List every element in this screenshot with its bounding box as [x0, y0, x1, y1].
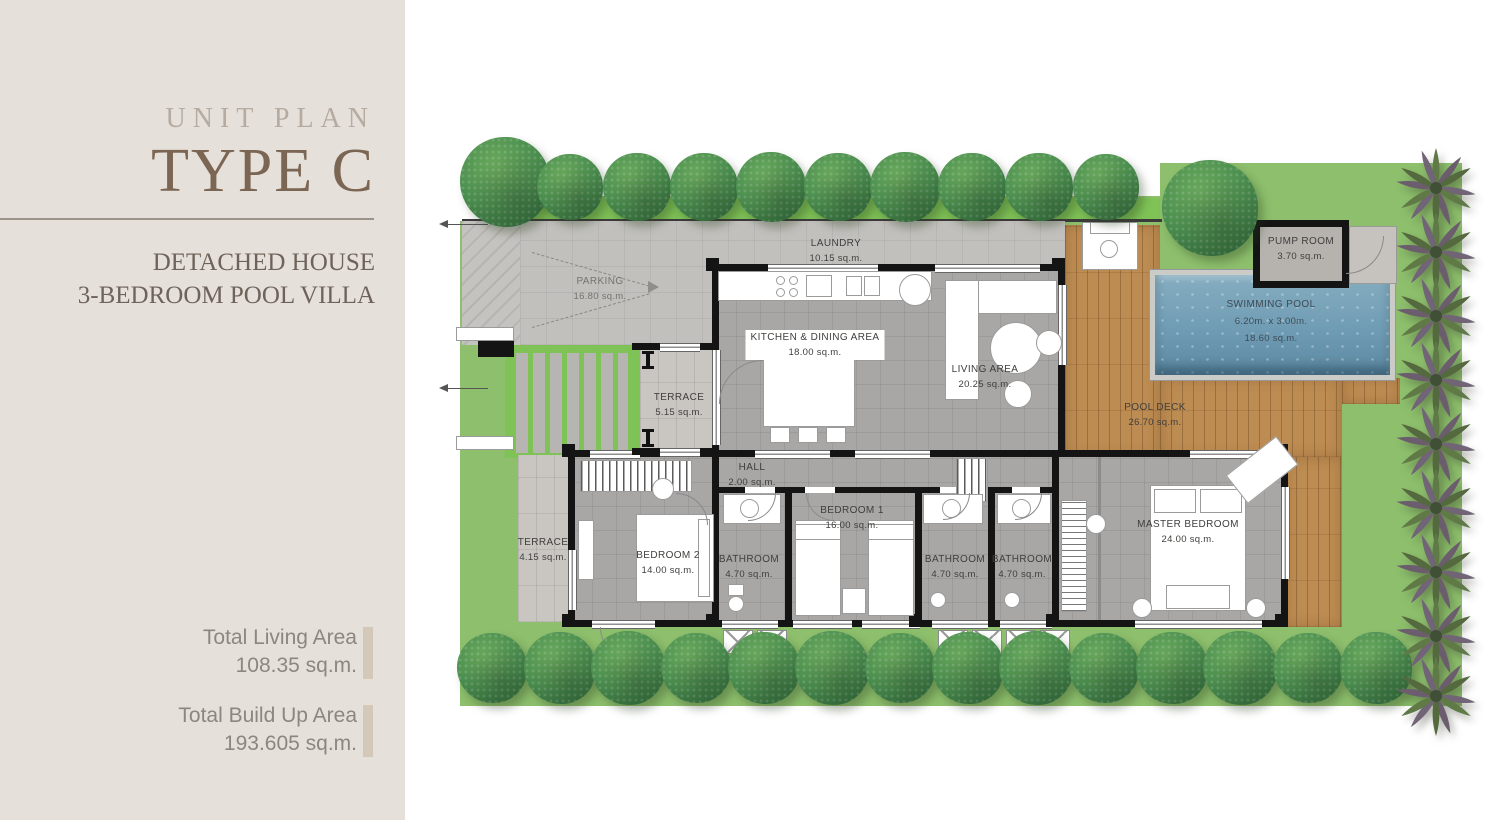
tree-icon [736, 152, 806, 222]
tree-icon [938, 153, 1006, 221]
pillow [795, 524, 841, 540]
pool-deck-wood [1160, 378, 1342, 457]
section-marker [448, 224, 488, 225]
pillow [1154, 489, 1196, 513]
window [1000, 620, 1052, 629]
palm-tree-icon [1394, 654, 1478, 738]
tree-icon [870, 152, 940, 222]
wardrobe [580, 460, 692, 492]
pump-room [1253, 220, 1349, 288]
step-marker [646, 430, 650, 446]
pool-deck-wood [1285, 457, 1342, 627]
window [755, 450, 830, 459]
tree-icon [591, 631, 665, 705]
tree-icon [804, 153, 872, 221]
shower-drain-icon [1100, 240, 1118, 258]
dresser [578, 520, 594, 580]
partition-wall [988, 490, 995, 620]
bench [1166, 585, 1230, 609]
tree-icon [932, 632, 1004, 704]
dining-chair [826, 427, 846, 443]
sink-basin [864, 276, 880, 296]
window [660, 448, 700, 457]
window [660, 343, 700, 352]
window [855, 450, 930, 459]
oven [806, 275, 832, 297]
column [706, 258, 719, 271]
dining-chair [798, 427, 818, 443]
tree-icon [865, 633, 935, 703]
outdoor-shower [1090, 222, 1130, 234]
wash-basin [1086, 514, 1106, 534]
pouf [1004, 380, 1032, 408]
partition-wall [915, 490, 922, 620]
window [793, 620, 852, 629]
pool-deck-wood [1342, 378, 1400, 404]
stove-burner-icon [776, 276, 785, 285]
window [722, 620, 778, 629]
drive-arrow-tip [648, 281, 659, 293]
column [1052, 258, 1065, 271]
column [562, 614, 575, 627]
side-table [1036, 330, 1062, 356]
pillow [698, 519, 710, 597]
side-table [652, 478, 674, 500]
sofa [945, 280, 979, 400]
tree-icon [1162, 160, 1258, 256]
stove-burner-icon [789, 276, 798, 285]
pillow [1200, 489, 1242, 513]
tree-icon [1203, 631, 1277, 705]
stove-burner-icon [789, 288, 798, 297]
tree-icon [1273, 633, 1343, 703]
tree-icon [524, 632, 596, 704]
section-marker [448, 388, 488, 389]
stepping-stones [516, 353, 628, 453]
nightstand [1132, 598, 1152, 618]
parking-pavement [520, 221, 712, 345]
column [562, 444, 575, 457]
site-plan: PARKING 16.80 sq.m. LAUNDRY 10.15 sq.m. … [0, 0, 1500, 820]
tree-icon [795, 631, 869, 705]
tree-icon [1136, 632, 1208, 704]
toilet [1004, 592, 1020, 608]
tree-icon [603, 153, 671, 221]
tree-icon [457, 633, 527, 703]
side-terrace-pavers [518, 455, 568, 622]
sliding-door [1281, 487, 1290, 579]
partition-wall [785, 490, 792, 620]
tree-icon [537, 154, 603, 220]
gate [456, 327, 514, 341]
round-table [899, 274, 931, 306]
tree-icon [1073, 154, 1139, 220]
unit-plan-page: UNIT PLAN TYPE C DETACHED HOUSE 3-BEDROO… [0, 0, 1500, 820]
tree-icon [1005, 153, 1073, 221]
partition-wall [1052, 457, 1059, 620]
tree-icon [661, 633, 731, 703]
column [1275, 614, 1288, 627]
nightstand [842, 588, 866, 614]
step-marker [646, 352, 650, 368]
dining-chair [770, 427, 790, 443]
nightstand [1246, 598, 1266, 618]
coffee-table [990, 322, 1042, 374]
tree-icon [728, 632, 800, 704]
pillow [868, 524, 914, 540]
toilet [728, 584, 744, 596]
sliding-door [1058, 285, 1067, 365]
dining-table [763, 343, 855, 427]
window [1135, 620, 1262, 629]
tree-icon [999, 631, 1073, 705]
front-terrace-pavers [640, 347, 712, 455]
closet-partition [1098, 457, 1101, 620]
toilet [728, 596, 744, 612]
stove-burner-icon [776, 288, 785, 297]
tree-icon [1069, 633, 1139, 703]
closet-shelves [1061, 500, 1087, 612]
window [935, 264, 1040, 273]
tree-icon [670, 153, 738, 221]
gate [456, 436, 514, 450]
sink-basin [846, 276, 862, 296]
gate-post [478, 341, 514, 357]
window [932, 620, 988, 629]
toilet [930, 592, 946, 608]
door [568, 550, 577, 610]
